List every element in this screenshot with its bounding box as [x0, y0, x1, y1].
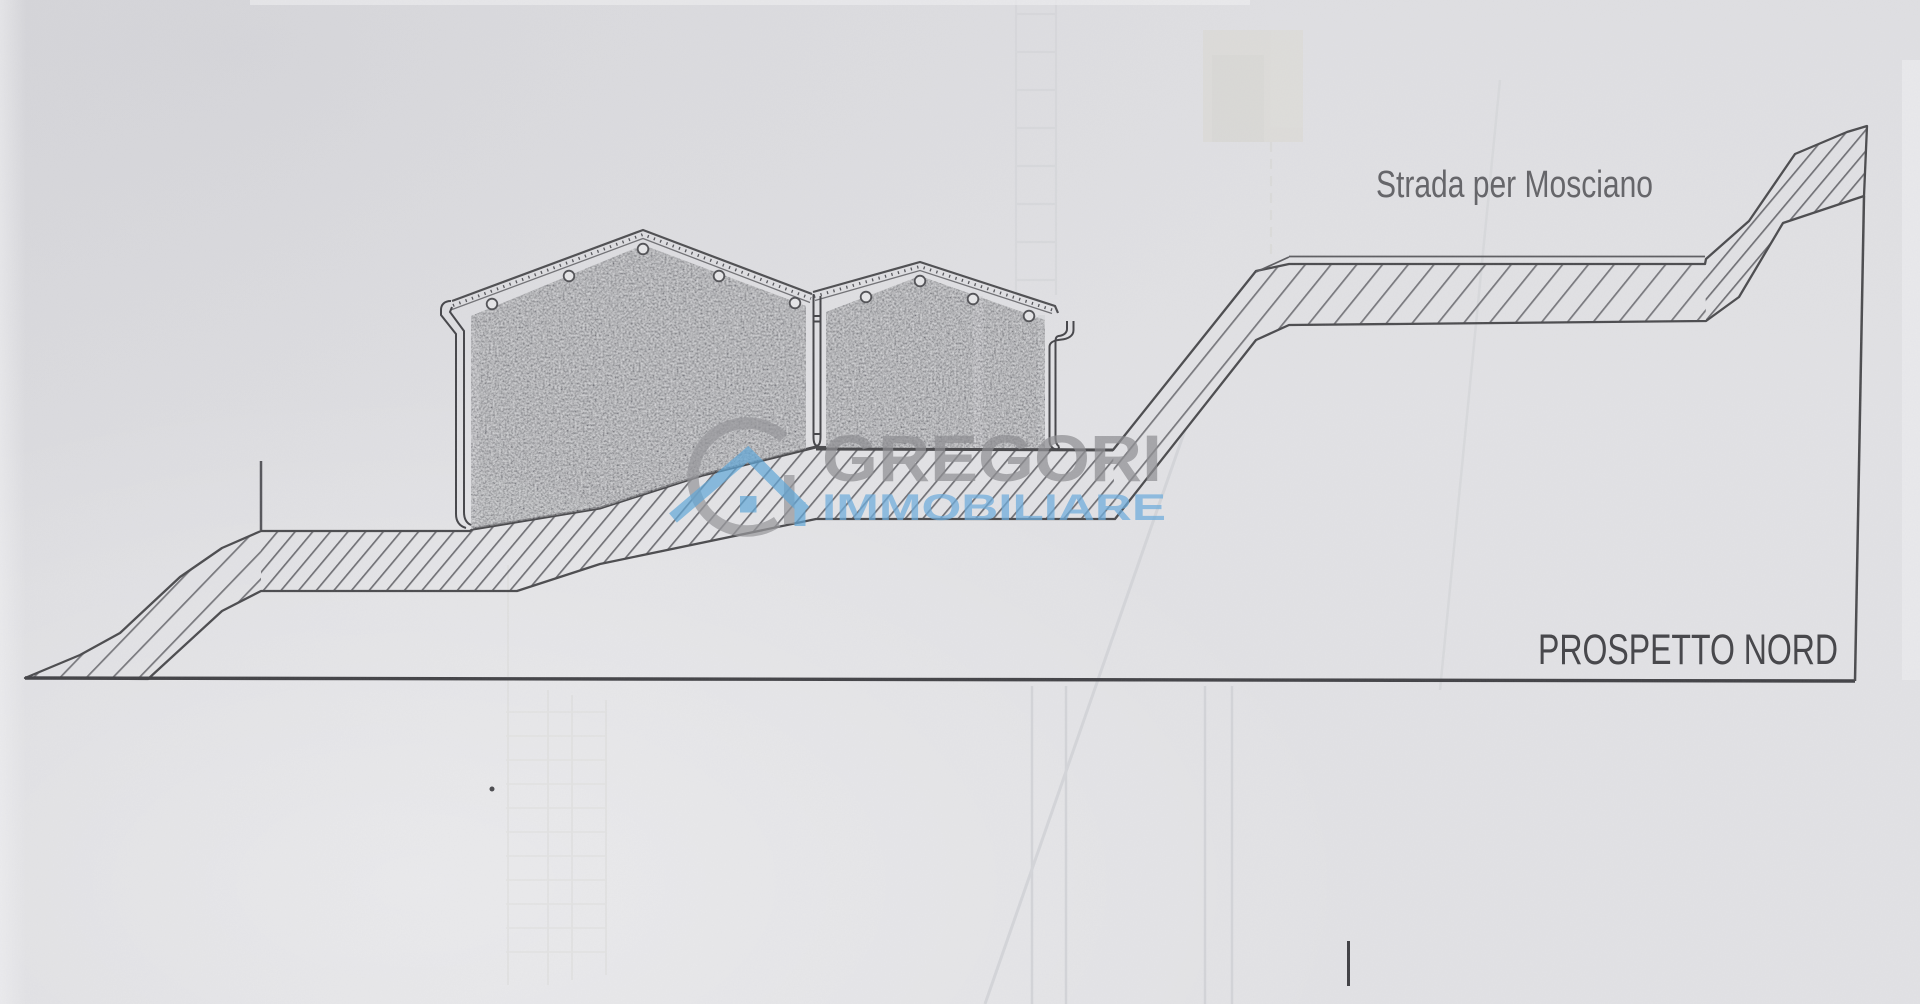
- svg-text:Strada per Mosciano: Strada per Mosciano: [1376, 164, 1653, 206]
- svg-text:PROSPETTO NORD: PROSPETTO NORD: [1538, 626, 1838, 674]
